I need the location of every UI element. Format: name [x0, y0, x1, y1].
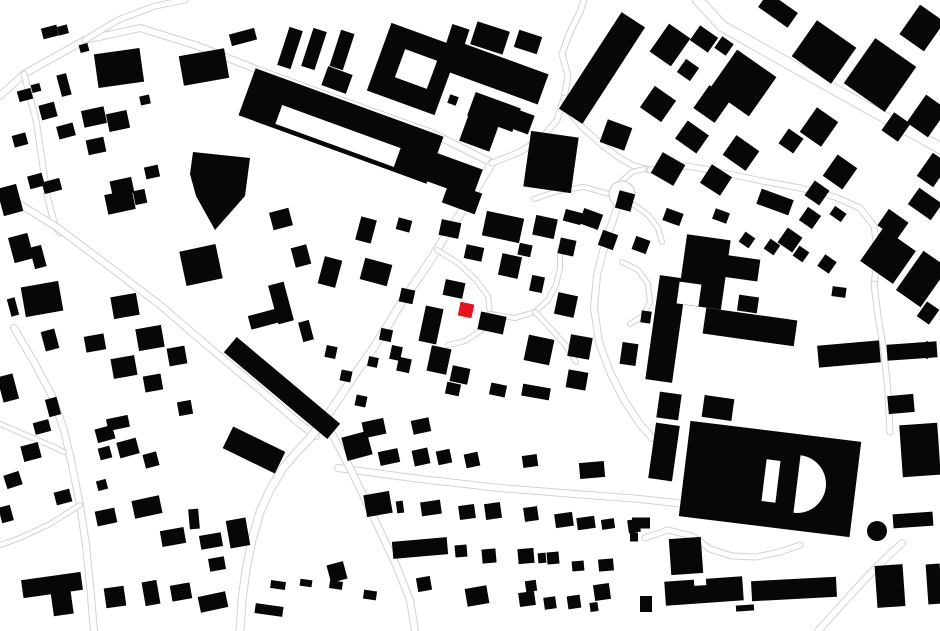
building-footprint [620, 342, 639, 366]
building-footprint [576, 516, 595, 530]
building-footprint [481, 548, 496, 563]
building-footprint [601, 518, 615, 530]
building-footprint [104, 586, 127, 609]
building-footprint [110, 293, 139, 319]
building-footprint [135, 325, 164, 351]
building-footprint [632, 518, 650, 529]
building-footprint [167, 346, 188, 367]
building-footprint [899, 423, 940, 478]
building-footprint [566, 369, 589, 390]
building-footprint [656, 392, 681, 421]
building-footprint [589, 602, 598, 612]
building-footprint [170, 582, 192, 601]
building-footprint [188, 509, 200, 530]
building-footprint [567, 334, 592, 359]
building-footprint [524, 335, 555, 366]
building-footprint [177, 400, 193, 416]
building-footprint [84, 333, 106, 352]
building-footprint [420, 500, 442, 517]
building-footprint [464, 452, 481, 469]
building-footprint [416, 576, 432, 592]
round-building-footprint [867, 521, 887, 541]
building-footprint [554, 512, 574, 528]
building-footprint [523, 506, 539, 522]
figure-ground-map [0, 0, 940, 631]
building-footprint [630, 533, 638, 542]
building-footprint [737, 295, 759, 314]
building-footprint [669, 537, 703, 575]
building-footprint [702, 395, 735, 421]
building-footprint [436, 449, 453, 466]
building-footprint [518, 591, 536, 607]
building-footprint [465, 585, 490, 607]
building-footprint [484, 502, 502, 520]
building-footprint [399, 288, 416, 305]
building-footprint [558, 238, 577, 257]
building-footprint [640, 310, 652, 323]
building-footprint [579, 461, 605, 479]
building-footprint [567, 595, 582, 610]
building-footprint [875, 564, 906, 608]
building-footprint [525, 580, 537, 592]
building-footprint [50, 588, 73, 617]
building-footprint [893, 512, 934, 529]
building-footprint [736, 604, 754, 611]
highlight-layer [458, 302, 475, 319]
building-footprint [110, 355, 137, 379]
highlighted-building [458, 302, 475, 319]
building-footprint [887, 394, 914, 414]
building-footprint [363, 590, 377, 601]
building-footprint [538, 553, 547, 564]
building-footprint [454, 544, 467, 557]
building-footprint [94, 48, 144, 88]
building-footprint [831, 286, 846, 298]
building-courtyard [677, 282, 702, 307]
building-courtyard [694, 576, 707, 586]
building-footprint [546, 551, 559, 564]
building-footprint [412, 448, 431, 467]
building-footprint [208, 556, 226, 572]
building-footprint [572, 560, 585, 571]
building-footprint [367, 356, 379, 368]
site-plan-canvas [0, 0, 940, 631]
building-footprint [458, 504, 476, 520]
building-footprint [363, 491, 392, 517]
building-footprint [543, 596, 557, 610]
building-footprint [593, 583, 611, 601]
building-footprint [523, 131, 578, 193]
building-footprint [354, 394, 367, 407]
building-footprint [143, 374, 164, 393]
building-footprint [640, 596, 652, 612]
building-footprint [339, 369, 352, 382]
building-footprint [522, 454, 539, 468]
building-footprint [517, 548, 534, 564]
building-footprint [598, 558, 614, 571]
building-footprint [379, 328, 393, 342]
